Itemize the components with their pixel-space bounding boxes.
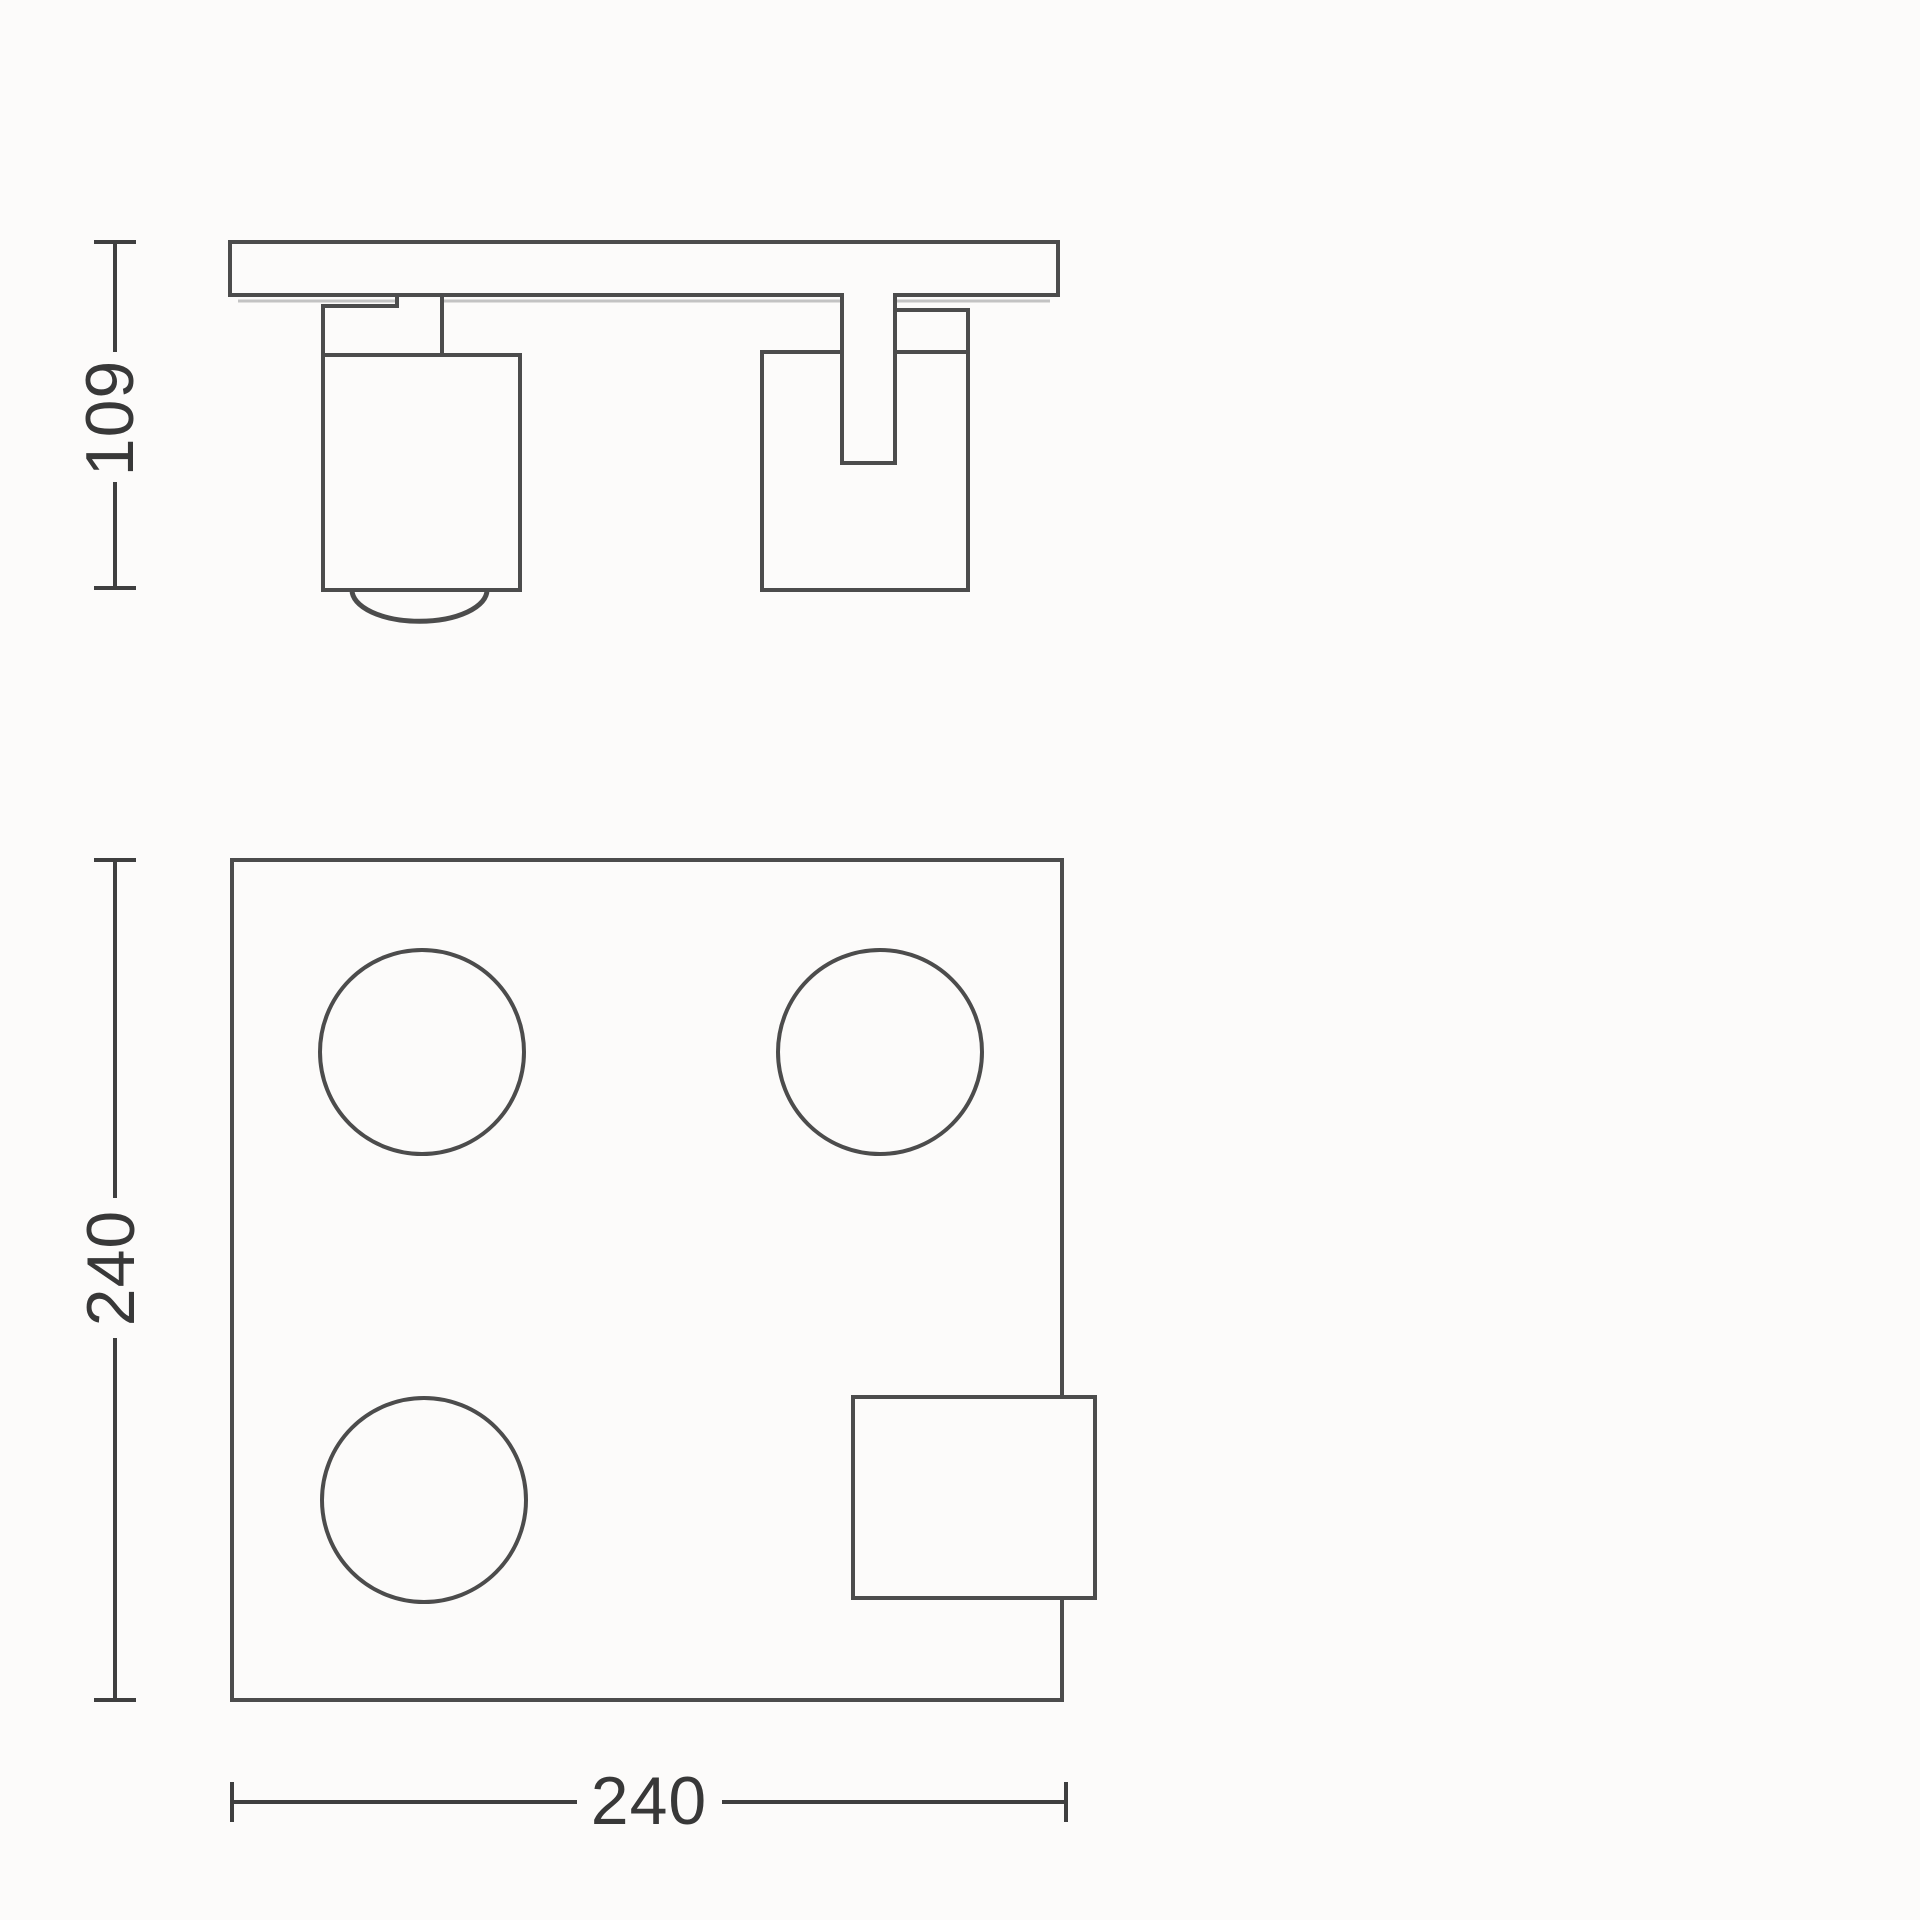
plan-height-dimension: 240 <box>73 860 149 1700</box>
connection-box <box>853 1397 1095 1598</box>
height-dim-label: 109 <box>72 360 148 476</box>
plan-height-dim-label: 240 <box>73 1210 149 1326</box>
mounting-plate <box>230 242 1058 295</box>
left-spot-bracket <box>323 295 442 355</box>
left-spot-lens-dome <box>352 590 487 621</box>
right-spot-mount-tab <box>895 310 968 352</box>
left-spot-body <box>323 355 520 590</box>
technical-drawing: 109 240 240 <box>0 0 1920 1920</box>
plan-view <box>232 860 1095 1700</box>
side-view <box>230 242 1058 621</box>
plan-width-dim-label: 240 <box>591 1763 707 1839</box>
height-dimension: 109 <box>72 242 148 588</box>
plan-width-dimension: 240 <box>232 1763 1066 1839</box>
right-spot-stem <box>842 293 895 463</box>
dimension-drawing-svg: 109 240 240 <box>0 0 1920 1920</box>
